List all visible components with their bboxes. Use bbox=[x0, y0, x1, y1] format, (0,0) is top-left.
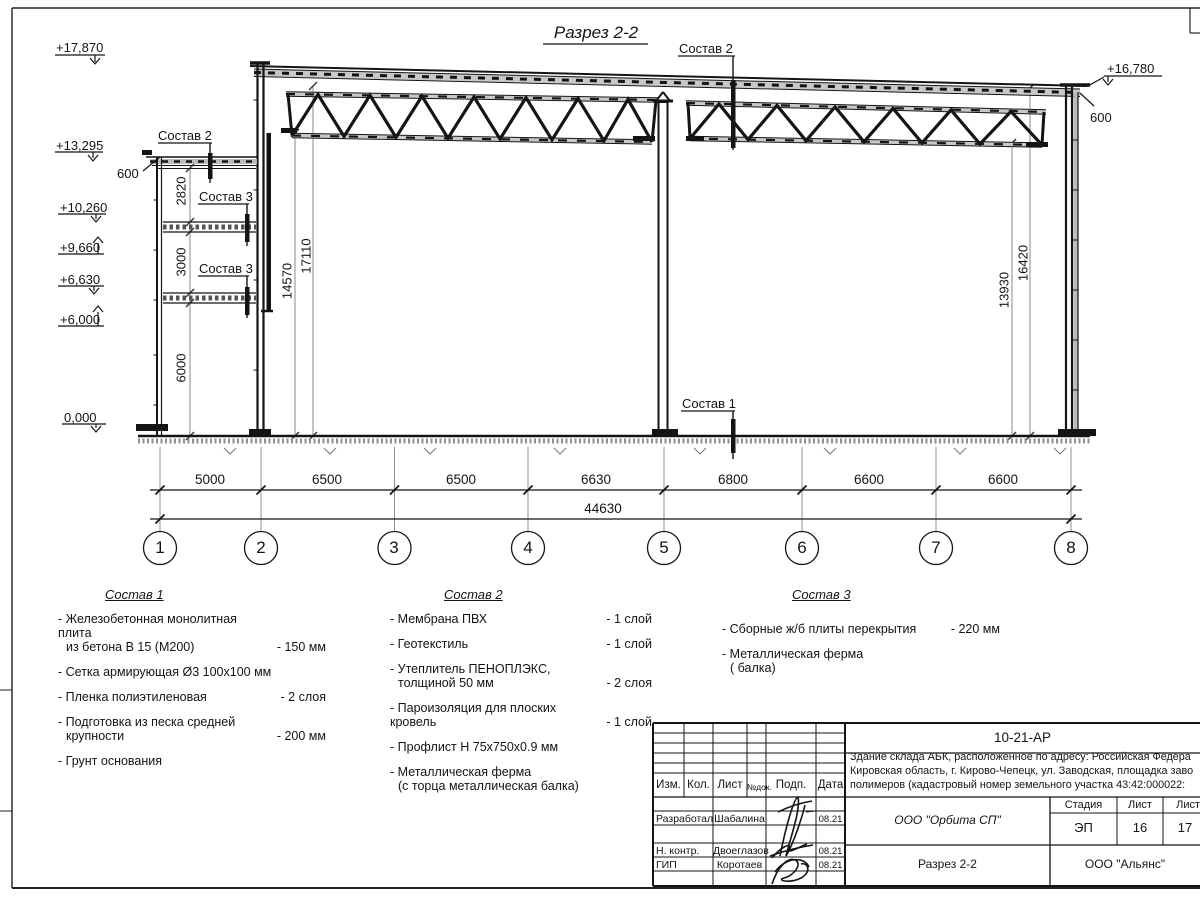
design-org: ООО "Орбита СП" bbox=[845, 813, 1050, 827]
list-item: - Мембрана ПВХ- 1 слой bbox=[390, 612, 652, 626]
notes-sostav-2: Состав 2 - Мембрана ПВХ- 1 слой - Геотек… bbox=[390, 588, 652, 804]
span-dim-6-7: 6600 bbox=[839, 472, 899, 487]
row-date-developer: 08.21 bbox=[816, 814, 845, 825]
callout-sostav3-upper: Состав 3 bbox=[199, 189, 253, 204]
col-podp: Подп. bbox=[766, 779, 816, 791]
span-dim-7-8: 6600 bbox=[973, 472, 1033, 487]
col-kol: Кол. bbox=[684, 779, 713, 791]
drawing-sheet: Разрез 2-2 +17,870 +13,295 600 +10,260 +… bbox=[0, 0, 1200, 900]
list-item: - Утеплитель ПЕНОПЛЭКС,толщиной 50 мм- 2… bbox=[390, 662, 652, 690]
span-dim-1-2: 5000 bbox=[180, 472, 240, 487]
row-date-ncontr: 08.21 bbox=[816, 846, 845, 857]
elevation-13295: +13,295 bbox=[56, 138, 103, 153]
sheets-label: Листов bbox=[1164, 799, 1200, 811]
list-item: - Подготовка из песка среднейкрупности- … bbox=[58, 715, 326, 743]
row-name-developer: Шабалина bbox=[713, 813, 766, 825]
vdim-3000: 3000 bbox=[174, 248, 189, 277]
list-item: - Сборные ж/б плиты перекрытия- 220 мм bbox=[722, 622, 1000, 636]
contractor-org: ООО "Альянс" bbox=[1050, 857, 1200, 871]
callout-sostav2-left: Состав 2 bbox=[158, 128, 212, 143]
vdim-2820: 2820 bbox=[174, 177, 189, 206]
list-item: - Пленка полиэтиленовая- 2 слоя bbox=[58, 690, 326, 704]
col-list: Лист bbox=[713, 779, 747, 791]
elevation-9660: +9,660 bbox=[60, 240, 100, 255]
notes-2-title: Состав 2 bbox=[390, 588, 652, 602]
elevation-17870: +17,870 bbox=[56, 40, 103, 55]
axis-bubble-6: 6 bbox=[785, 538, 819, 558]
axis-bubble-7: 7 bbox=[919, 538, 953, 558]
axis-bubble-3: 3 bbox=[377, 538, 411, 558]
list-item: - Металлическая ферма(с торца металличес… bbox=[390, 765, 652, 793]
col-data: Дата bbox=[816, 779, 845, 791]
row-role-gip: ГИП bbox=[656, 859, 677, 871]
elevation-6000: +6,000 bbox=[60, 312, 100, 327]
list-item: - Пароизоляция для плоских кровель- 1 сл… bbox=[390, 701, 652, 729]
axis-bubble-5: 5 bbox=[647, 538, 681, 558]
axis-bubble-4: 4 bbox=[511, 538, 545, 558]
vdim-17110: 17110 bbox=[299, 238, 314, 273]
project-desc-line1: Здание склада АБК, расположенное по адре… bbox=[850, 751, 1191, 763]
stage-label: Стадия bbox=[1050, 799, 1117, 811]
project-desc-line3: полимеров (кадастровый номер земельного … bbox=[850, 779, 1185, 791]
sheet-label: Лист bbox=[1117, 799, 1163, 811]
notes-3-title: Состав 3 bbox=[722, 588, 1000, 602]
vdim-13930: 13930 bbox=[997, 272, 1012, 308]
col-izm: Изм. bbox=[653, 779, 684, 791]
stage-value: ЭП bbox=[1050, 820, 1117, 835]
list-item: - Грунт основания bbox=[58, 754, 326, 768]
row-date-gip: 08.21 bbox=[816, 860, 845, 871]
row-name-ncontr: Двоеглазов bbox=[713, 845, 766, 857]
list-item: - Геотекстиль- 1 слой bbox=[390, 637, 652, 651]
elevation-0000: 0,000 bbox=[64, 410, 97, 425]
drawing-title: Разрез 2-2 bbox=[540, 23, 652, 43]
sheet-value: 16 bbox=[1117, 820, 1163, 835]
elevation-10260: +10,260 bbox=[60, 200, 107, 215]
vdim-14570: 14570 bbox=[280, 263, 295, 299]
elevation-16780: +16,780 bbox=[1107, 61, 1154, 76]
span-dim-4-5: 6630 bbox=[566, 472, 626, 487]
total-dim: 44630 bbox=[568, 501, 638, 516]
elevation-6630: +6,630 bbox=[60, 272, 100, 287]
notes-1-title: Состав 1 bbox=[58, 588, 326, 602]
notes-sostav-1: Состав 1 - Железобетонная монолитная пли… bbox=[58, 588, 326, 779]
list-item: - Профлист Н 75х750х0.9 мм bbox=[390, 740, 652, 754]
notes-sostav-3: Состав 3 - Сборные ж/б плиты перекрытия-… bbox=[722, 588, 1000, 686]
list-item: - Металлическая ферма( балка) bbox=[722, 647, 1000, 675]
span-dim-3-4: 6500 bbox=[431, 472, 491, 487]
row-role-ncontr: Н. контр. bbox=[656, 845, 699, 857]
callout-sostav3-lower: Состав 3 bbox=[199, 261, 253, 276]
sheets-value: 17 bbox=[1163, 820, 1200, 835]
axis-bubble-8: 8 bbox=[1054, 538, 1088, 558]
parapet-height-right: 600 bbox=[1090, 110, 1112, 125]
span-dim-2-3: 6500 bbox=[297, 472, 357, 487]
doc-code: 10-21-АР bbox=[845, 730, 1200, 745]
axis-bubble-1: 1 bbox=[143, 538, 177, 558]
callout-sostav1: Состав 1 bbox=[682, 396, 736, 411]
span-dim-5-6: 6800 bbox=[703, 472, 763, 487]
vdim-6000: 6000 bbox=[174, 354, 189, 383]
list-item: - Железобетонная монолитная плитаиз бето… bbox=[58, 612, 326, 654]
section-name: Разрез 2-2 bbox=[845, 857, 1050, 871]
parapet-height-left: 600 bbox=[117, 166, 139, 181]
col-ndoc: №док. bbox=[747, 782, 766, 792]
axis-bubble-2: 2 bbox=[244, 538, 278, 558]
vdim-16420: 16420 bbox=[1016, 245, 1031, 281]
list-item: - Сетка армирующая Ø3 100х100 мм bbox=[58, 665, 326, 679]
row-name-gip: Коротаев bbox=[713, 859, 766, 871]
row-role-developer: Разработал bbox=[656, 813, 713, 825]
callout-sostav2-top: Состав 2 bbox=[679, 41, 733, 56]
project-desc-line2: Кировская область, г. Кирово-Чепецк, ул.… bbox=[850, 765, 1193, 777]
